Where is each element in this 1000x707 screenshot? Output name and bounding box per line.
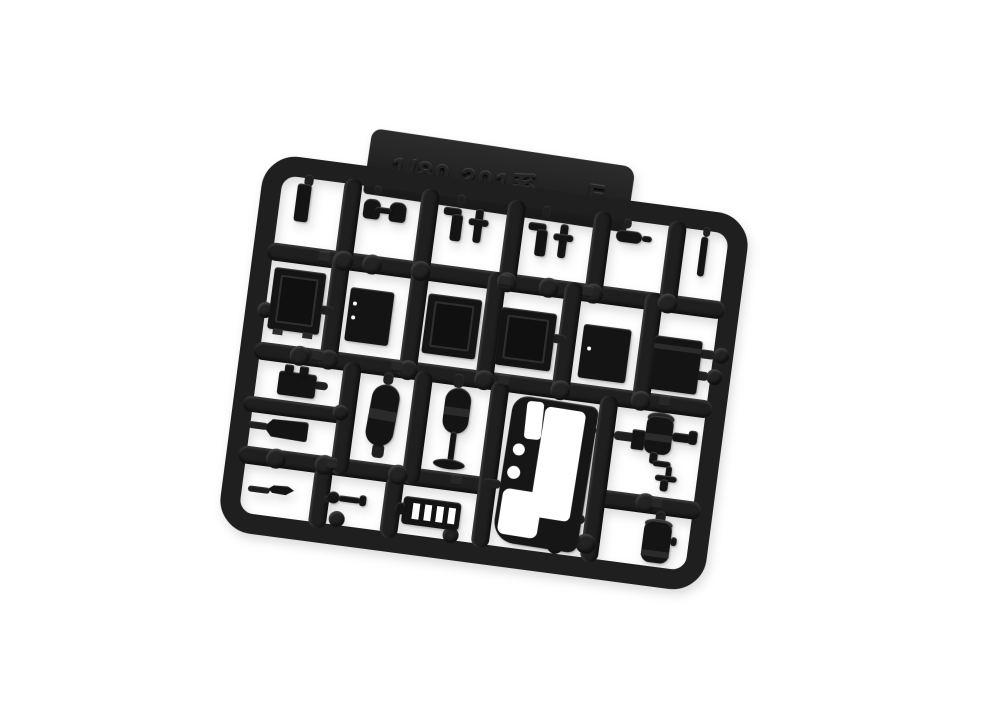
reservoir-band bbox=[443, 406, 470, 417]
part-battery-terminal bbox=[284, 364, 294, 374]
part-equipment-box-5 bbox=[577, 324, 632, 384]
part-equipment-box-4 bbox=[494, 307, 557, 372]
resistor-slot bbox=[411, 503, 420, 520]
resistor-slot bbox=[423, 504, 432, 521]
number-plate bbox=[325, 457, 337, 469]
resistor-slot bbox=[435, 506, 444, 523]
part-pipe-fitting-arm bbox=[642, 235, 653, 242]
cab-light-hole bbox=[506, 465, 521, 480]
part-equipment-box-1 bbox=[267, 267, 327, 335]
part-battery-terminal bbox=[299, 366, 309, 376]
cab-light-hole bbox=[512, 443, 526, 457]
box-recessed-panel bbox=[429, 301, 475, 352]
box-vent-hole bbox=[587, 346, 591, 350]
small-tank-band bbox=[641, 549, 670, 559]
sprue-runner: 1/80 201系 E bbox=[216, 153, 751, 594]
number-plate bbox=[498, 374, 510, 386]
number-plate bbox=[450, 474, 462, 486]
part-equipment-box-6 bbox=[648, 335, 703, 395]
box-vent-hole bbox=[351, 315, 355, 319]
part-compressor-foot bbox=[659, 479, 668, 492]
compressor-band bbox=[645, 433, 673, 443]
part-equipment-box-2 bbox=[344, 287, 395, 346]
box-vent-hole bbox=[353, 301, 357, 305]
box-foot bbox=[272, 328, 283, 335]
cab-lower-window-cutout bbox=[497, 488, 544, 540]
part-battery-box bbox=[276, 370, 317, 399]
number-plate bbox=[390, 360, 402, 372]
number-plate bbox=[499, 274, 511, 286]
photo-canvas: 1/80 201系 E bbox=[0, 0, 1000, 707]
number-plate bbox=[582, 285, 594, 297]
part-compressor-valve bbox=[687, 430, 698, 445]
part-equipment-box-3 bbox=[421, 293, 482, 360]
number-plate bbox=[651, 497, 663, 509]
part-compressor-body bbox=[643, 415, 675, 456]
part-small-tank bbox=[640, 519, 673, 564]
box-recessed-panel bbox=[275, 275, 319, 328]
tank-band bbox=[368, 408, 397, 423]
box-recessed-panel bbox=[502, 315, 549, 364]
resistor-slot bbox=[447, 508, 456, 525]
number-plate bbox=[658, 395, 670, 407]
box-foot bbox=[302, 332, 313, 339]
number-plate bbox=[318, 250, 330, 262]
box-lid-line bbox=[654, 343, 702, 354]
number-plate bbox=[311, 349, 323, 361]
